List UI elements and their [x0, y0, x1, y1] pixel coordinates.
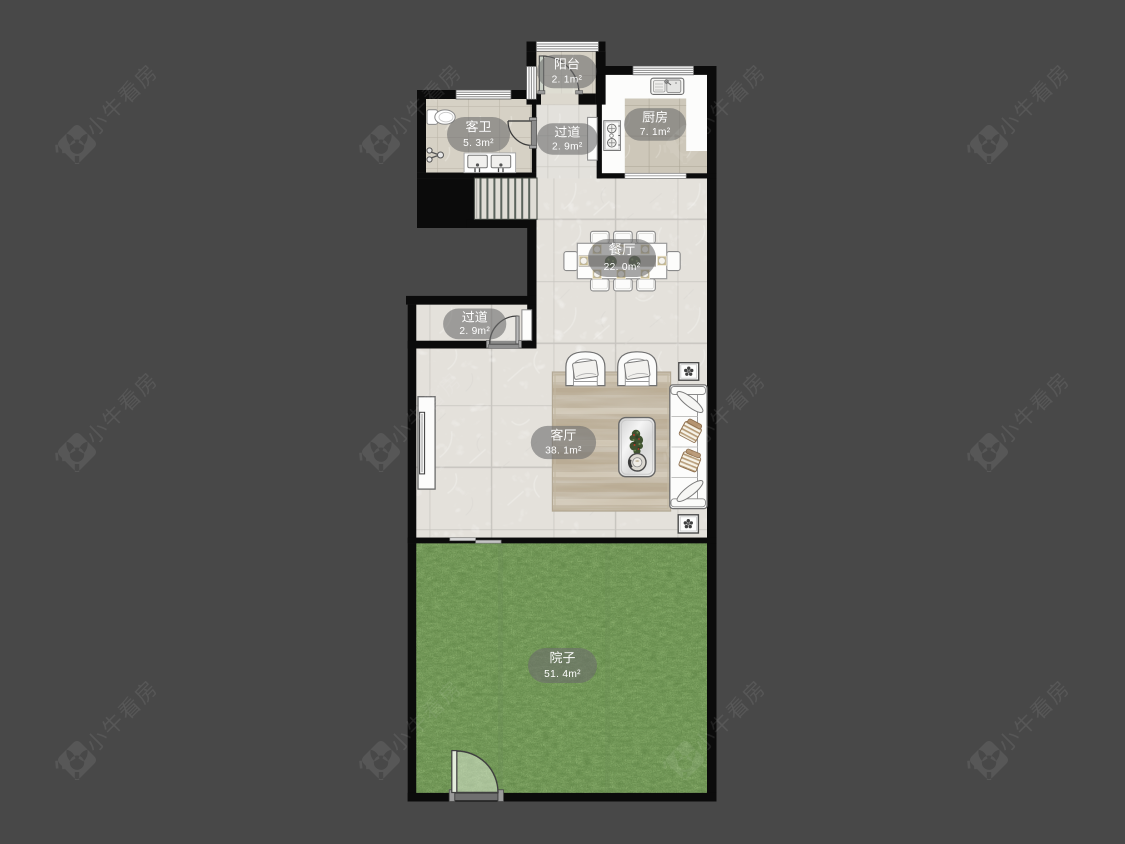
svg-text:22. 0m²: 22. 0m²: [604, 262, 641, 273]
svg-text:38. 1m²: 38. 1m²: [545, 445, 582, 456]
svg-text:2. 1m²: 2. 1m²: [552, 74, 583, 85]
svg-text:5. 3m²: 5. 3m²: [463, 138, 494, 149]
svg-text:7. 1m²: 7. 1m²: [640, 127, 671, 138]
svg-text:51. 4m²: 51. 4m²: [544, 669, 581, 680]
svg-text:2. 9m²: 2. 9m²: [552, 141, 583, 152]
svg-text:2. 9m²: 2. 9m²: [459, 326, 490, 337]
